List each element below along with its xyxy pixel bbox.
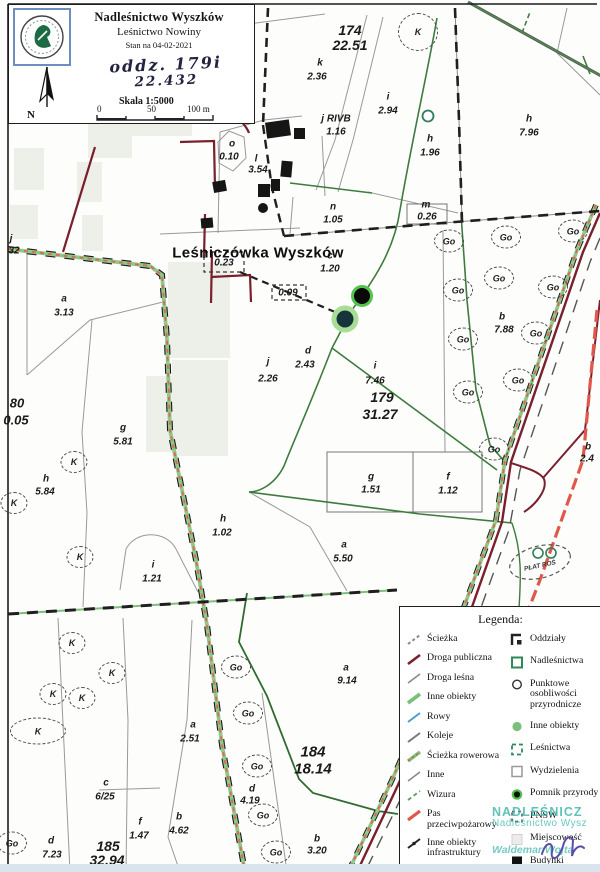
parcel-label: 7.23: [42, 850, 61, 861]
legend-item-label: Inne obiekty infrastruktury: [427, 838, 508, 860]
legend-item-forest-district: Nadleśnictwa: [508, 656, 600, 669]
go-soil-marker: Go: [479, 438, 509, 461]
parcel-label: h: [220, 514, 226, 525]
legend-item-label: Miejscowość: [530, 833, 582, 844]
parcel-label: 0.26: [417, 212, 436, 223]
legend-column-right: OddziałyNadleśnictwaPunktowe osobliwości…: [508, 633, 600, 865]
legend-column-left: ŚcieżkaDroga publicznaDroga leśnaInne ob…: [400, 633, 508, 865]
parcel-label: j: [267, 357, 270, 368]
legend-title: Legenda:: [400, 612, 600, 627]
legend-item-label: Koleje: [427, 731, 453, 742]
legend-item-subdivisions: Wydzielenia: [508, 765, 600, 778]
parcel-label: 1.20: [320, 264, 339, 275]
k-soil-marker: K: [10, 718, 66, 745]
go-soil-marker: Go: [261, 841, 291, 864]
other-objects-line-icon: [405, 692, 424, 705]
forest-district-icon: [508, 656, 527, 669]
infrastructure-icon: [405, 837, 424, 850]
legend-item-label: Punktowe osobliwości przyrodnicze: [530, 679, 600, 711]
parcel-label: 31.27: [362, 406, 397, 422]
parcel-label: 0.10: [219, 152, 238, 163]
legend-item-other-objects-dot: Inne obiekty: [508, 720, 600, 733]
legend-item-label: Inne: [427, 770, 444, 781]
parcel-label: a: [61, 294, 67, 305]
go-soil-marker: Go: [233, 702, 263, 725]
parcel-label: 179: [370, 389, 393, 405]
subdivisions-icon: [508, 765, 527, 778]
locality-icon: [508, 833, 527, 846]
legend-item-infrastructure: Inne obiekty infrastruktury: [405, 837, 508, 859]
legend-item-label: Pas przeciwpożarowy: [427, 809, 508, 831]
firebreak-icon: [405, 809, 424, 822]
k-soil-marker: K: [59, 632, 86, 654]
pnsw-icon: [508, 810, 527, 823]
top-right-road: [468, 2, 600, 82]
parcel-label: g: [368, 472, 374, 483]
go-soil-marker: Go: [443, 279, 473, 302]
go-soil-marker: Go: [558, 220, 588, 243]
parcel-label: h: [43, 474, 49, 485]
legend-item-ditch: Rowy: [405, 711, 508, 724]
legend-item-forestry-unit: Leśnictwa: [508, 743, 600, 756]
go-soil-marker: Go: [434, 230, 464, 253]
parcel-label: k: [317, 58, 323, 69]
k-soil-marker: K: [1, 492, 28, 514]
parcel-label: i: [152, 560, 155, 571]
legend-item-label: Wydzielenia: [530, 766, 579, 777]
legend-item-label: Leśnictwa: [530, 743, 570, 754]
path-dashed-icon: [405, 633, 424, 646]
nature-points-icon: [508, 678, 527, 691]
legend-item-bike-path: Ścieżka rowerowa: [405, 750, 508, 763]
go-soil-marker: Go: [242, 755, 272, 778]
parcel-label: 22.51: [332, 37, 367, 53]
bike-path-icon: [405, 750, 424, 763]
legend-item-other-line: Inne: [405, 770, 508, 783]
legend-item-label: Pomnik przyrody: [530, 788, 598, 799]
legend-item-locality: Miejscowość: [508, 833, 600, 846]
parcel-label: 3.20: [307, 846, 326, 857]
parcel-label: 184: [300, 744, 325, 761]
go-soil-marker: Go: [503, 369, 533, 392]
go-soil-marker: Go: [448, 328, 478, 351]
k-soil-marker: K: [61, 451, 88, 473]
parcel-label: 3.54: [248, 165, 267, 176]
parcel-label: 18.14: [294, 761, 332, 778]
legend-item-compartments: Oddziały: [508, 633, 600, 646]
parcel-label: 174: [338, 22, 361, 38]
parcel-label: 4.19: [240, 796, 259, 807]
k-soil-marker: K: [69, 687, 96, 709]
parcel-label: 2.94: [378, 106, 397, 117]
parcel-label: 2.36: [307, 72, 326, 83]
compartments-icon: [508, 633, 527, 646]
go-soil-marker: Go: [248, 804, 278, 827]
place-label: Leśniczówka Wyszków: [172, 245, 344, 262]
parcel-label: 2.51: [180, 734, 199, 745]
legend-item-label: Wizura: [427, 790, 455, 801]
legend-item-label: Ścieżka rowerowa: [427, 751, 499, 762]
parcel-label: f: [138, 817, 141, 828]
legend-item-pnsw: PNSW: [508, 810, 600, 823]
parcel-label: 5.84: [35, 487, 54, 498]
legend-panel: Legenda: ŚcieżkaDroga publicznaDroga leś…: [399, 606, 600, 865]
parcel-label: 5.81: [113, 437, 132, 448]
parcel-label: 1.02: [212, 528, 231, 539]
legend-item-railway: Koleje: [405, 731, 508, 744]
forestry-unit-icon: [508, 743, 527, 756]
parcel-label: l: [255, 154, 258, 165]
parcel-label: 1.96: [420, 148, 439, 159]
parcel-label: h: [427, 134, 433, 145]
legend-item-label: Rowy: [427, 712, 450, 723]
parcel-label: b: [314, 834, 320, 845]
parcel-label: d: [48, 836, 54, 847]
parcel-label: m: [422, 200, 431, 211]
legend-item-label: Nadleśnictwa: [530, 656, 583, 667]
go-soil-marker: Go: [491, 226, 521, 249]
map-page: 17422.51k2.36j RIVB1.16i2.94h1.96h7.96o0…: [0, 0, 600, 872]
parcel-label: 6/25: [95, 792, 114, 803]
parcel-label: 1.21: [142, 574, 161, 585]
unit-title: Leśnictwo Nowiny: [67, 26, 251, 38]
k-soil-marker: K: [67, 546, 94, 568]
parcel-label: i: [374, 361, 377, 372]
other-objects-dot-icon: [508, 720, 527, 733]
legend-item-label: Droga publiczna: [427, 653, 492, 664]
parcel-label: b: [499, 312, 505, 323]
k-soil-marker: K: [99, 662, 126, 684]
legend-item-nature-points: Punktowe osobliwości przyrodnicze: [508, 678, 600, 711]
scan-edge-strip: [0, 864, 600, 872]
parcel-label: 2.4: [580, 454, 594, 465]
parcel-label: f: [446, 472, 449, 483]
parcel-label: j RIVB: [321, 114, 350, 125]
k-soil-marker: K: [40, 683, 67, 705]
header-text: Nadleśnictwo Wyszków Leśnictwo Nowiny St…: [67, 10, 251, 50]
go-soil-marker: Go: [221, 656, 251, 679]
parcel-label: 32: [8, 246, 19, 257]
parcel-label: j: [10, 234, 13, 245]
parcel-label: c: [103, 778, 109, 789]
monument-markers: [334, 287, 372, 331]
parcel-label: 2.43: [295, 360, 314, 371]
parcel-label: 7.46: [365, 376, 384, 387]
ditch-icon: [405, 711, 424, 724]
nature-monument-icon: [508, 788, 527, 801]
map-title-box: Nadleśnictwo Wyszków Leśnictwo Nowiny St…: [8, 4, 255, 124]
legend-item-nature-monument: Pomnik przyrody: [508, 788, 600, 801]
parcel-label: 5.50: [333, 554, 352, 565]
railway-icon: [405, 731, 424, 744]
scale-bar: [95, 113, 217, 121]
go-soil-marker: Go: [484, 267, 514, 290]
org-title: Nadleśnictwo Wyszków: [67, 10, 251, 25]
legend-item-path-dashed: Ścieżka: [405, 633, 508, 646]
status-date: Stan na 04-02-2021: [67, 40, 251, 50]
lasy-panstwowe-logo-icon: [13, 8, 71, 66]
legend-item-sightline: Wizura: [405, 789, 508, 802]
parcel-label: 4.62: [169, 826, 188, 837]
legend-item-label: Inne obiekty: [530, 721, 579, 732]
legend-item-label: PNSW: [530, 811, 557, 822]
legend-item-road-public: Droga publiczna: [405, 653, 508, 666]
road-forest-icon: [405, 672, 424, 685]
parcel-label: 1.16: [326, 127, 345, 138]
parcel-label: 3.13: [54, 308, 73, 319]
parcel-label: 1.51: [361, 485, 380, 496]
parcel-label: b: [585, 442, 591, 453]
legend-item-other-objects-line: Inne obiekty: [405, 692, 508, 705]
parcel-label: 1.12: [438, 486, 457, 497]
parcel-label: h: [526, 114, 532, 125]
nature-point-marker: [423, 111, 434, 122]
legend-item-label: Oddziały: [530, 634, 566, 645]
parcel-label: 2.26: [258, 374, 277, 385]
go-soil-marker: Go: [538, 276, 568, 299]
legend-item-road-forest: Droga leśna: [405, 672, 508, 685]
parcel-label: d: [249, 784, 255, 795]
parcel-label: a: [190, 720, 196, 731]
parcel-label: 7.88: [494, 325, 513, 336]
parcel-label: 9.14: [337, 676, 356, 687]
parcel-label: o: [229, 139, 235, 150]
parcel-label: 7.96: [519, 128, 538, 139]
other-line-icon: [405, 770, 424, 783]
go-soil-marker: Go: [521, 322, 551, 345]
parcel-label: 0.05: [3, 413, 28, 428]
road-public-icon: [405, 653, 424, 666]
north-label: N: [27, 109, 35, 121]
legend-item-firebreak: Pas przeciwpożarowy: [405, 809, 508, 831]
parcel-label: a: [343, 663, 349, 674]
parcel-label: a: [341, 540, 347, 551]
legend-item-label: Droga leśna: [427, 673, 474, 684]
parcel-label: i: [387, 92, 390, 103]
legend-columns: ŚcieżkaDroga publicznaDroga leśnaInne ob…: [400, 633, 600, 865]
parcel-label: 1.05: [323, 215, 342, 226]
legend-item-label: Inne obiekty: [427, 692, 476, 703]
parcel-label: 0.09: [278, 288, 297, 299]
parcel-label: 1.47: [129, 831, 148, 842]
legend-item-label: Ścieżka: [427, 634, 457, 645]
handwritten-note: oddz. 179i 22.432: [80, 51, 251, 92]
parcel-label: d: [305, 346, 311, 357]
k-soil-marker: K: [398, 13, 438, 51]
parcel-label: g: [120, 423, 126, 434]
parcel-label: 80: [10, 396, 24, 411]
sightline-icon: [405, 789, 424, 802]
parcel-label: n: [330, 202, 336, 213]
parcel-label: b: [176, 812, 182, 823]
go-soil-marker: Go: [453, 381, 483, 404]
